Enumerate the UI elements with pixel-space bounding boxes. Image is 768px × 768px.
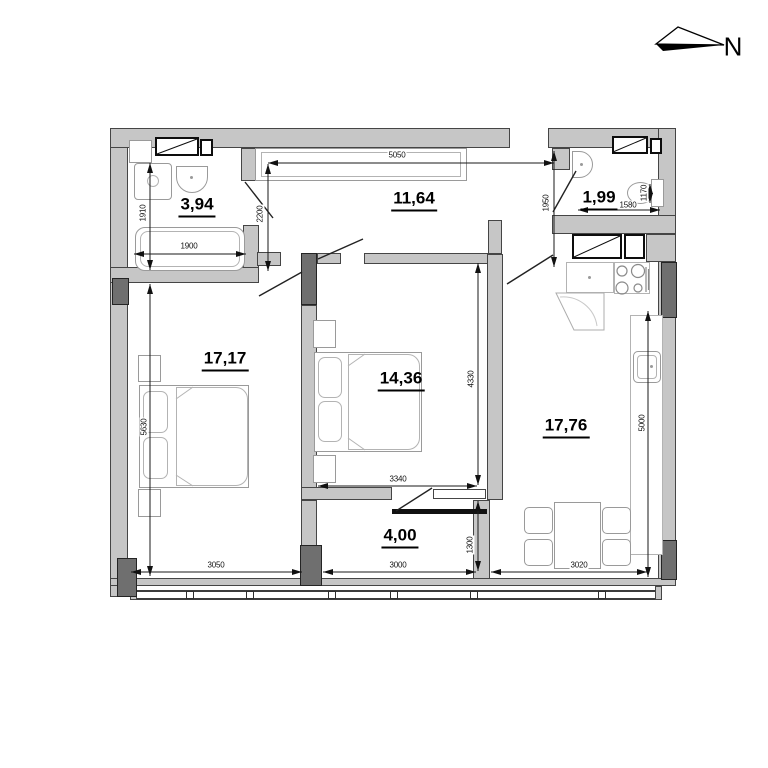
dim-label-5630: 5630 xyxy=(140,418,149,437)
nightstand xyxy=(313,320,336,348)
area-label-loggia: 4,00 xyxy=(381,526,418,549)
vent-shaft-wc xyxy=(612,136,648,154)
column xyxy=(300,545,322,586)
loggia-window xyxy=(433,489,486,499)
loggia-door-sill xyxy=(392,509,487,514)
wall-wc-left xyxy=(552,148,570,170)
vent-shaft-bathroom xyxy=(155,137,199,156)
bathroom-sink xyxy=(176,166,208,193)
dim-label-5050: 5050 xyxy=(388,151,407,160)
dim-label-3050: 3050 xyxy=(207,561,226,570)
door-swings xyxy=(245,171,576,511)
cabinet-knob xyxy=(588,276,591,279)
corner-cabinet xyxy=(556,293,604,330)
dim-label-1910: 1910 xyxy=(139,204,148,223)
dim-label-5000: 5000 xyxy=(638,414,647,433)
wall-hall-stub xyxy=(257,252,281,266)
washing-machine-drum xyxy=(147,175,159,187)
north-label: N xyxy=(724,32,743,63)
north-arrow-icon xyxy=(656,27,724,51)
chair xyxy=(524,507,553,534)
dim-label-1900: 1900 xyxy=(180,242,199,251)
area-label-bedroom2: 14,36 xyxy=(378,369,425,392)
wall-bedroom2-top-stub xyxy=(317,253,341,264)
wall-kitchen-left-stub xyxy=(488,220,502,254)
toilet-tank xyxy=(651,179,664,207)
floor-plan: N 3,94 11,64 1,99 17,17 14,36 17,76 4,00… xyxy=(0,0,768,768)
glazing-mullion xyxy=(186,591,194,599)
wall-bedroom2-top xyxy=(364,253,502,264)
kitchen-sink-inner xyxy=(637,355,657,379)
wall-vent-fill xyxy=(646,234,676,262)
door-leaf-bedroom1 xyxy=(259,272,302,296)
area-label-bedroom1: 17,17 xyxy=(202,349,249,372)
vent-shaft-kitchen-small xyxy=(624,234,645,259)
dim-label-1170: 1170 xyxy=(640,184,649,202)
nightstand xyxy=(138,489,161,517)
area-label-hallway: 11,64 xyxy=(391,189,437,212)
corner-duct xyxy=(129,140,152,163)
sink-drain xyxy=(190,176,193,179)
vent-shaft-bathroom-small xyxy=(200,139,213,156)
area-label-kitchen: 17,76 xyxy=(543,416,590,439)
dining-table xyxy=(554,502,601,569)
wall-wc-bottom xyxy=(552,215,676,234)
dim-label-2200: 2200 xyxy=(256,205,265,224)
glazing-mullion xyxy=(598,591,606,599)
glazing-mullion xyxy=(328,591,336,599)
dim-label-1950: 1950 xyxy=(542,194,551,213)
pillow xyxy=(318,401,342,442)
blanket xyxy=(176,387,248,486)
column xyxy=(661,262,677,318)
wall-loggia-left xyxy=(301,500,317,546)
dim-label-3340: 3340 xyxy=(389,475,408,484)
area-label-bathroom: 3,94 xyxy=(178,195,215,218)
dim-label-1580: 1580 xyxy=(619,201,638,210)
stove xyxy=(614,262,650,294)
column xyxy=(117,558,137,597)
vent-shaft-wc-small xyxy=(650,138,662,154)
dim-label-4330: 4330 xyxy=(467,370,476,389)
door-leaf-kitchen xyxy=(507,255,553,284)
chair xyxy=(602,507,631,534)
column xyxy=(301,253,317,305)
dim-label-3020: 3020 xyxy=(570,561,589,570)
glazing-mullion xyxy=(470,591,478,599)
nightstand xyxy=(313,455,336,483)
dim-label-1300: 1300 xyxy=(466,536,475,555)
column xyxy=(661,540,677,580)
column xyxy=(112,278,129,305)
wall-exterior-left xyxy=(110,128,128,597)
glazing-mullion xyxy=(390,591,398,599)
area-label-wc: 1,99 xyxy=(580,188,617,211)
vent-shaft-kitchen xyxy=(572,234,622,259)
sink-drain xyxy=(580,163,583,166)
sink-drain xyxy=(650,365,653,368)
dim-label-3000: 3000 xyxy=(389,561,408,570)
chair xyxy=(524,539,553,566)
door-leaf-loggia xyxy=(396,488,432,511)
nightstand xyxy=(138,355,161,382)
chair xyxy=(602,539,631,566)
wardrobe-inner xyxy=(261,152,461,177)
wall-exterior-bottom xyxy=(110,578,676,586)
wall-bedroom2-bottom xyxy=(301,487,392,500)
glazing-mullion xyxy=(246,591,254,599)
pillow xyxy=(143,437,168,479)
wall-kitchen-left xyxy=(487,254,503,500)
glazing-cap xyxy=(655,586,662,600)
pillow xyxy=(318,357,342,398)
